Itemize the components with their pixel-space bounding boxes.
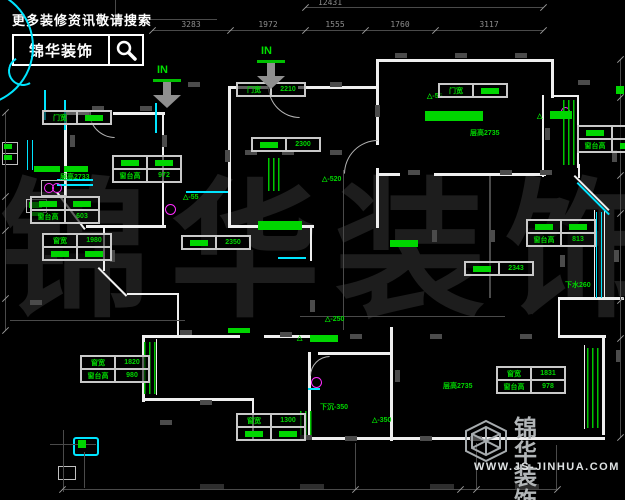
legend-minibox xyxy=(58,466,76,480)
dimension-chip xyxy=(140,106,152,111)
wall-segment xyxy=(310,225,312,261)
dim-table-row xyxy=(43,247,111,260)
green-label-bar xyxy=(228,328,250,333)
dimension-value-faint xyxy=(300,484,324,489)
wall-segment xyxy=(558,335,606,338)
dim-table-row: 窗台高980 xyxy=(81,369,149,382)
dim-table-row: 窗台高813 xyxy=(527,233,595,246)
dim-table: 门宽 xyxy=(438,83,508,98)
dimension-value-faint xyxy=(200,484,224,489)
dim-table-row: 门宽 xyxy=(439,84,507,97)
dim-table-cell xyxy=(527,220,561,233)
dim-table-cell: 窗宽 xyxy=(43,234,77,247)
dimension-chip xyxy=(432,230,437,242)
room-label: 层高2733 xyxy=(60,172,90,182)
dimension-line xyxy=(84,452,85,488)
watermark-character: 饰 xyxy=(505,178,625,328)
dim-table-row: 窗台高972 xyxy=(113,169,181,182)
dimension-line xyxy=(343,170,344,330)
green-label-bar xyxy=(425,111,483,121)
green-value-bar xyxy=(39,201,57,207)
dim-table-cell: 窗台高 xyxy=(578,139,612,152)
dimension-chip xyxy=(350,334,362,339)
green-value-bar xyxy=(481,88,499,94)
dim-table-cell xyxy=(465,262,499,275)
dimension-line xyxy=(62,489,557,490)
dimension-line xyxy=(10,320,185,321)
dimension-chip xyxy=(515,53,527,58)
dim-table-cell: 1300 xyxy=(271,414,305,427)
cyan-plumbing-line xyxy=(601,212,602,298)
dimension-chip xyxy=(395,370,400,382)
dimension-chip xyxy=(375,105,380,117)
room-label: △-55 xyxy=(183,193,199,201)
wall-segment xyxy=(86,225,166,228)
dim-table-cell: 603 xyxy=(65,210,99,223)
green-value-bar xyxy=(121,160,139,166)
green-label-bar xyxy=(78,440,86,448)
wall-segment xyxy=(127,293,179,295)
entry-arrow-head xyxy=(153,95,181,108)
cad-floorplan-canvas: 锦华装饰 32831972155517603117 层高2733层高2735层高… xyxy=(0,0,625,500)
dim-table-cell: 窗台高 xyxy=(113,169,147,182)
door-swing-arc xyxy=(310,356,330,376)
dimension-chip xyxy=(560,255,565,267)
room-label: △-350 xyxy=(372,416,391,424)
green-label-bar xyxy=(310,335,338,342)
dim-table-cell xyxy=(31,197,65,210)
dim-table: 窗台高972 xyxy=(112,155,182,183)
door-swing-arc xyxy=(344,140,378,174)
green-label-bar xyxy=(34,166,60,172)
dim-table-row: 窗台高 xyxy=(578,139,625,152)
green-value-bar xyxy=(620,143,625,149)
dimension-chip xyxy=(30,300,42,305)
green-value-bar xyxy=(260,142,278,148)
cyan-plumbing-line xyxy=(278,257,306,259)
dimension-line xyxy=(63,430,64,492)
green-label-bar xyxy=(4,155,12,160)
dimension-chip xyxy=(162,135,167,147)
dim-table-cell: 17 xyxy=(612,126,625,139)
green-value-bar xyxy=(245,431,263,437)
dim-table: 窗台高813 xyxy=(526,219,596,247)
dim-table-cell xyxy=(612,139,625,152)
room-label: △-520 xyxy=(322,175,341,183)
dim-table: 2350 xyxy=(181,235,251,250)
legend-minibox xyxy=(41,180,67,196)
dimension-chip xyxy=(420,436,432,441)
dimension-value: 1555 xyxy=(325,20,344,29)
dim-table-row xyxy=(237,427,305,440)
wall-segment xyxy=(558,297,624,300)
footer-brand-name: 锦华装饰 xyxy=(514,417,544,500)
dim-table-cell: 窗台高 xyxy=(497,380,531,393)
green-value-bar xyxy=(473,266,491,272)
dim-table-row xyxy=(527,220,595,233)
dim-table-cell: 窗台高 xyxy=(31,210,65,223)
dim-table-cell xyxy=(578,126,612,139)
dim-table-row xyxy=(113,156,181,169)
dim-table-cell xyxy=(77,247,111,260)
socket-symbol xyxy=(311,377,322,388)
dimension-line xyxy=(50,444,96,445)
watermark-character: 装 xyxy=(335,178,485,328)
dim-table-row: 17 xyxy=(578,126,625,139)
green-value-bar xyxy=(85,115,103,121)
footer-url: WWW.JS-JINHUA.COM xyxy=(474,461,620,473)
dimension-line xyxy=(152,30,543,31)
cyan-plumbing-line xyxy=(596,212,597,298)
entry-arrow-shaft xyxy=(267,63,275,76)
dimension-chip xyxy=(330,150,342,155)
dimension-chip xyxy=(578,80,590,85)
dimension-chip xyxy=(520,334,532,339)
dim-table-cell: 窗宽 xyxy=(497,367,531,380)
dimension-chip xyxy=(280,332,292,337)
dim-table: 窗台高603 xyxy=(30,196,100,224)
room-label: △-250 xyxy=(325,315,344,323)
dim-table-cell xyxy=(237,427,271,440)
cyan-plumbing-line xyxy=(32,140,33,170)
wall-segment xyxy=(604,210,605,300)
dim-table-row: 2343 xyxy=(465,262,533,275)
dimension-chip xyxy=(490,230,495,242)
dimension-chip xyxy=(614,250,619,262)
green-value-bar xyxy=(190,240,208,246)
dim-table: 窗宽1300 xyxy=(236,413,306,441)
dim-table-cell: 2300 xyxy=(286,138,320,151)
dimension-chip xyxy=(200,400,212,405)
dim-table-cell: 门宽 xyxy=(439,84,473,97)
dim-table-cell xyxy=(113,156,147,169)
dim-table-cell: 1980 xyxy=(77,234,111,247)
dimension-line xyxy=(620,59,621,438)
entry-in-label: IN xyxy=(261,45,272,57)
dimension-chip xyxy=(160,420,172,425)
dim-table-cell: 2350 xyxy=(216,236,250,249)
dimension-chip xyxy=(500,170,512,175)
green-label-bar xyxy=(4,144,12,149)
dim-table-cell: 972 xyxy=(147,169,181,182)
green-value-bar xyxy=(73,201,91,207)
wall-segment xyxy=(177,293,179,337)
dimension-value: 1972 xyxy=(258,20,277,29)
dimension-value-faint xyxy=(430,484,454,489)
dim-table-row: 窗台高603 xyxy=(31,210,99,223)
green-value-bar xyxy=(279,431,297,437)
dimension-chip xyxy=(395,53,407,58)
dim-table-cell xyxy=(43,247,77,260)
dimension-value: 3283 xyxy=(181,20,200,29)
dim-table-cell xyxy=(271,427,305,440)
wall-segment xyxy=(318,352,392,355)
green-label-bar xyxy=(390,240,418,247)
wall-segment xyxy=(142,335,240,338)
dim-table: 17窗台高 xyxy=(577,125,625,153)
dimension-chip xyxy=(225,150,230,162)
wall-segment xyxy=(578,164,580,178)
window-lines xyxy=(563,100,578,165)
room-label: 下水260 xyxy=(565,280,591,290)
dim-table: 窗宽1831窗台高978 xyxy=(496,366,566,394)
room-label: 下沉-350 xyxy=(320,402,348,412)
dimension-chip xyxy=(540,170,552,175)
wall-segment xyxy=(542,95,544,177)
wall-segment xyxy=(558,297,560,338)
entry-arrow-shaft xyxy=(163,82,171,95)
window-lines xyxy=(587,348,601,428)
wall-segment xyxy=(551,95,579,97)
dim-table-cell xyxy=(473,84,507,97)
dim-table-row: 窗宽1831 xyxy=(497,367,565,380)
green-label-bar xyxy=(616,86,624,94)
dimension-tick xyxy=(540,27,547,34)
dimension-tick xyxy=(617,434,624,441)
green-value-bar xyxy=(586,130,604,136)
dimension-chip xyxy=(180,330,192,335)
dim-table-cell xyxy=(182,236,216,249)
dim-table-row: 窗宽1820 xyxy=(81,356,149,369)
entry-in-label: IN xyxy=(157,64,168,76)
dim-table-cell xyxy=(147,156,181,169)
dimension-line xyxy=(355,443,356,490)
dim-table-cell: 1831 xyxy=(531,367,565,380)
dim-table-cell: 窗台高 xyxy=(527,233,561,246)
wall-segment xyxy=(376,168,379,228)
dim-table-cell: 窗宽 xyxy=(81,356,115,369)
green-value-bar xyxy=(51,251,69,257)
wall-segment xyxy=(602,335,605,435)
dimension-chip xyxy=(345,436,357,441)
dim-table: 2300 xyxy=(251,137,321,152)
dimension-value: 1760 xyxy=(390,20,409,29)
dimension-chip xyxy=(70,135,75,147)
wall-segment xyxy=(584,345,585,429)
dimension-tick xyxy=(540,4,547,11)
dim-table-cell: 2343 xyxy=(499,262,533,275)
dimension-chip xyxy=(188,82,200,87)
dim-table: 2343 xyxy=(464,261,534,276)
dim-table-row xyxy=(31,197,99,210)
dimension-chip xyxy=(330,82,342,87)
entry-arrow-head xyxy=(257,76,285,89)
dim-table: 门宽 xyxy=(42,110,112,125)
wall-segment xyxy=(551,59,554,98)
dim-table-cell xyxy=(65,197,99,210)
dimension-chip xyxy=(545,128,550,140)
dim-table-cell: 门宽 xyxy=(43,111,77,124)
cyan-fixture-box xyxy=(73,437,99,456)
dim-table-row: 2350 xyxy=(182,236,250,249)
dimension-value: 3117 xyxy=(479,20,498,29)
dim-table-cell xyxy=(252,138,286,151)
room-label: 层高2735 xyxy=(443,381,473,391)
dimension-chip xyxy=(455,53,467,58)
cyan-plumbing-line xyxy=(27,140,28,170)
dim-table-cell xyxy=(561,220,595,233)
dim-table-cell xyxy=(77,111,111,124)
green-label-bar xyxy=(550,111,572,119)
window-lines xyxy=(268,158,283,191)
green-label-bar xyxy=(258,221,302,230)
green-value-bar xyxy=(155,160,173,166)
dimension-chip xyxy=(616,350,621,362)
dimension-line xyxy=(305,7,543,8)
wall-segment xyxy=(142,398,254,401)
wall-segment xyxy=(376,59,379,145)
dimension-chip xyxy=(408,170,420,175)
wall-segment xyxy=(376,173,400,176)
dim-table-row: 窗宽1980 xyxy=(43,234,111,247)
dim-table-row: 窗台高978 xyxy=(497,380,565,393)
dim-table-cell: 978 xyxy=(531,380,565,393)
magnifier-icon xyxy=(110,39,142,61)
dim-table: 窗宽1820窗台高980 xyxy=(80,355,150,383)
dim-table-cell: 980 xyxy=(115,369,149,382)
dimension-chip xyxy=(430,334,442,339)
wall-segment xyxy=(376,59,554,62)
dim-table-cell: 813 xyxy=(561,233,595,246)
green-value-bar xyxy=(535,224,553,230)
dim-table-cell: 窗台高 xyxy=(81,369,115,382)
socket-symbol xyxy=(165,204,176,215)
dim-table-row: 窗宽1300 xyxy=(237,414,305,427)
cyan-plumbing-line xyxy=(308,388,320,390)
dim-table: 窗宽1980 xyxy=(42,233,112,261)
room-label: △ xyxy=(537,112,542,120)
dim-table-cell: 1820 xyxy=(115,356,149,369)
total-dimension: 12431 xyxy=(318,0,342,7)
room-label: △ xyxy=(297,334,302,342)
dimension-chip xyxy=(310,300,315,312)
header-tagline: 更多装修资讯敬请搜索 xyxy=(12,10,152,29)
room-label: 层高2735 xyxy=(470,128,500,138)
dim-table-row: 门宽 xyxy=(43,111,111,124)
green-value-bar xyxy=(569,224,587,230)
green-value-bar xyxy=(85,251,103,257)
jinhua-logo-icon xyxy=(462,419,510,463)
wall-segment xyxy=(113,112,165,115)
dim-table-row: 2300 xyxy=(252,138,320,151)
dim-table-cell: 窗宽 xyxy=(237,414,271,427)
